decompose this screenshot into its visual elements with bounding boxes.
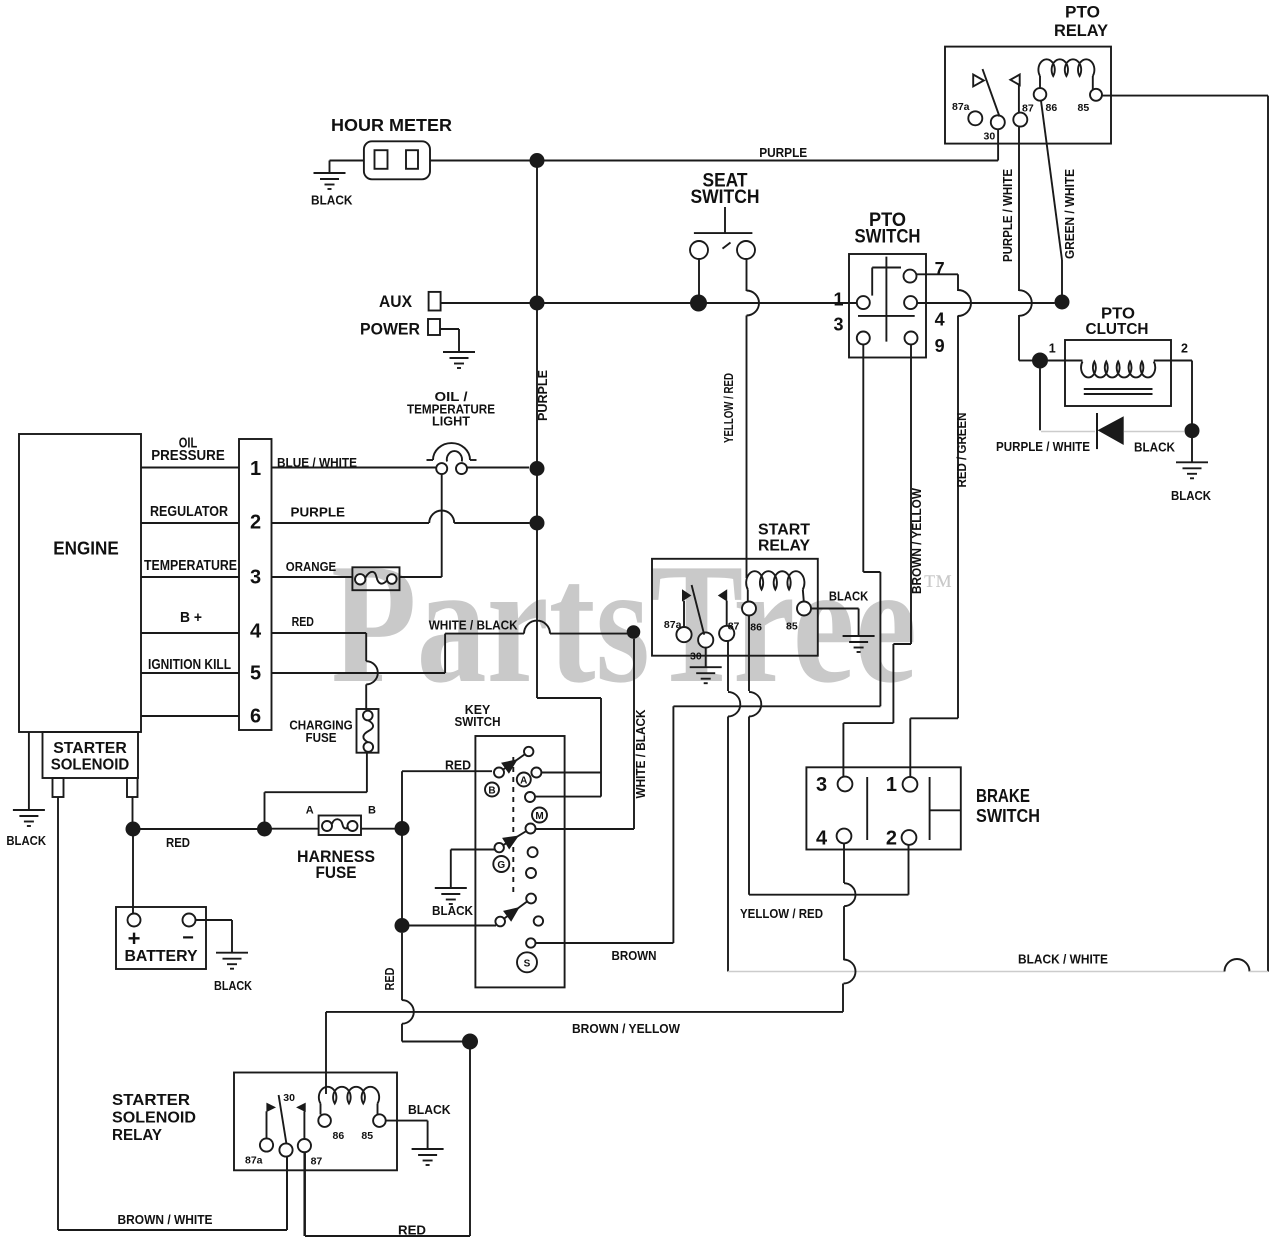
svg-text:BATTERY: BATTERY [125, 948, 199, 965]
svg-text:RED: RED [398, 1224, 426, 1238]
svg-text:AUX: AUX [379, 292, 413, 311]
svg-text:85: 85 [1078, 102, 1090, 114]
svg-text:BLACK: BLACK [214, 979, 252, 993]
svg-text:B +: B + [180, 609, 202, 626]
svg-text:3: 3 [250, 567, 261, 589]
svg-text:87a: 87a [952, 101, 970, 113]
svg-text:RELAY: RELAY [1054, 21, 1109, 40]
svg-text:ENGINE: ENGINE [53, 539, 119, 559]
svg-text:1: 1 [1049, 342, 1056, 356]
svg-text:1: 1 [250, 458, 261, 480]
svg-text:PURPLE: PURPLE [291, 505, 346, 519]
svg-text:FUSE: FUSE [316, 863, 357, 882]
svg-text:BLACK / WHITE: BLACK / WHITE [1018, 953, 1108, 967]
svg-text:87: 87 [1022, 103, 1034, 115]
svg-text:FUSE: FUSE [306, 731, 337, 745]
svg-text:87: 87 [728, 621, 740, 633]
svg-text:86: 86 [333, 1130, 345, 1142]
svg-text:SWITCH: SWITCH [976, 806, 1040, 826]
svg-text:BLACK: BLACK [1171, 489, 1211, 503]
svg-text:PartsTree: PartsTree [331, 529, 917, 719]
svg-text:BRAKE: BRAKE [976, 786, 1030, 806]
svg-text:HOUR METER: HOUR METER [331, 115, 452, 135]
svg-text:GREEN / WHITE: GREEN / WHITE [1063, 169, 1077, 259]
svg-text:87a: 87a [664, 619, 682, 631]
svg-text:B: B [488, 786, 495, 797]
svg-text:STARTER: STARTER [53, 740, 127, 757]
svg-text:BROWN / YELLOW: BROWN / YELLOW [910, 488, 924, 594]
svg-text:A: A [520, 776, 527, 787]
svg-text:85: 85 [786, 621, 798, 633]
svg-text:PTO: PTO [1065, 3, 1100, 22]
svg-text:LIGHT: LIGHT [432, 415, 470, 429]
svg-text:30: 30 [984, 131, 996, 143]
svg-text:2: 2 [250, 512, 261, 534]
svg-text:PURPLE: PURPLE [536, 370, 550, 421]
svg-text:RED: RED [383, 968, 397, 991]
svg-text:BROWN: BROWN [612, 949, 657, 963]
svg-text:RED: RED [166, 836, 190, 850]
svg-text:85: 85 [361, 1130, 373, 1142]
svg-text:BLACK: BLACK [829, 590, 868, 604]
svg-text:CLUTCH: CLUTCH [1086, 321, 1149, 338]
svg-text:B: B [368, 805, 376, 817]
svg-text:1: 1 [833, 289, 843, 309]
svg-text:BROWN / WHITE: BROWN / WHITE [118, 1213, 213, 1227]
svg-text:SWITCH: SWITCH [691, 187, 760, 208]
svg-text:1: 1 [886, 774, 897, 796]
svg-text:SOLENOID: SOLENOID [112, 1110, 196, 1127]
svg-text:STARTER: STARTER [112, 1092, 190, 1109]
svg-text:IGNITION KILL: IGNITION KILL [148, 656, 231, 673]
svg-text:3: 3 [816, 774, 827, 796]
svg-text:3: 3 [833, 315, 843, 335]
svg-text:G: G [497, 860, 505, 871]
svg-text:M: M [535, 811, 543, 822]
svg-text:6: 6 [250, 706, 261, 728]
svg-text:86: 86 [1046, 102, 1058, 114]
svg-text:™: ™ [923, 569, 952, 602]
svg-text:5: 5 [250, 663, 261, 685]
svg-text:YELLOW / RED: YELLOW / RED [740, 907, 823, 921]
svg-text:4: 4 [816, 828, 828, 850]
svg-text:BLACK: BLACK [311, 194, 353, 208]
svg-text:S: S [524, 958, 531, 969]
svg-text:WHITE / BLACK: WHITE / BLACK [634, 710, 648, 799]
svg-text:BLACK: BLACK [432, 904, 473, 918]
svg-text:BLACK: BLACK [6, 834, 46, 848]
svg-text:87a: 87a [245, 1155, 263, 1167]
svg-text:SOLENOID: SOLENOID [51, 757, 130, 774]
svg-text:4: 4 [935, 310, 945, 330]
svg-text:BLACK: BLACK [1134, 441, 1175, 455]
svg-text:YELLOW / RED: YELLOW / RED [722, 373, 736, 443]
svg-text:RED / GREEN: RED / GREEN [955, 413, 969, 488]
svg-text:START: START [758, 522, 810, 539]
svg-text:BLACK: BLACK [408, 1103, 451, 1117]
svg-text:PURPLE / WHITE: PURPLE / WHITE [996, 440, 1090, 454]
svg-text:RELAY: RELAY [112, 1127, 163, 1144]
svg-text:30: 30 [283, 1092, 295, 1104]
svg-text:86: 86 [750, 622, 762, 634]
svg-text:SWITCH: SWITCH [455, 715, 501, 729]
svg-text:REGULATOR: REGULATOR [150, 503, 228, 520]
svg-text:A: A [306, 805, 314, 817]
svg-text:TEMPERATURE: TEMPERATURE [144, 557, 237, 574]
svg-text:30: 30 [690, 650, 702, 662]
svg-text:BROWN / YELLOW: BROWN / YELLOW [572, 1022, 680, 1036]
svg-text:ORANGE: ORANGE [286, 560, 336, 574]
svg-text:SWITCH: SWITCH [855, 227, 921, 248]
svg-text:9: 9 [935, 336, 945, 356]
svg-text:RED: RED [292, 615, 314, 629]
svg-text:−: − [182, 927, 194, 949]
svg-text:2: 2 [1181, 342, 1188, 356]
svg-text:RELAY: RELAY [758, 538, 810, 555]
svg-text:2: 2 [886, 828, 897, 850]
svg-text:87: 87 [311, 1155, 323, 1167]
svg-text:4: 4 [250, 621, 262, 643]
svg-text:WHITE / BLACK: WHITE / BLACK [429, 618, 518, 632]
svg-text:PURPLE: PURPLE [759, 146, 807, 160]
svg-text:PURPLE / WHITE: PURPLE / WHITE [1001, 169, 1015, 262]
svg-text:7: 7 [935, 259, 945, 279]
svg-text:POWER: POWER [360, 320, 420, 339]
svg-text:PRESSURE: PRESSURE [151, 447, 225, 464]
svg-text:PTO: PTO [1101, 306, 1135, 323]
